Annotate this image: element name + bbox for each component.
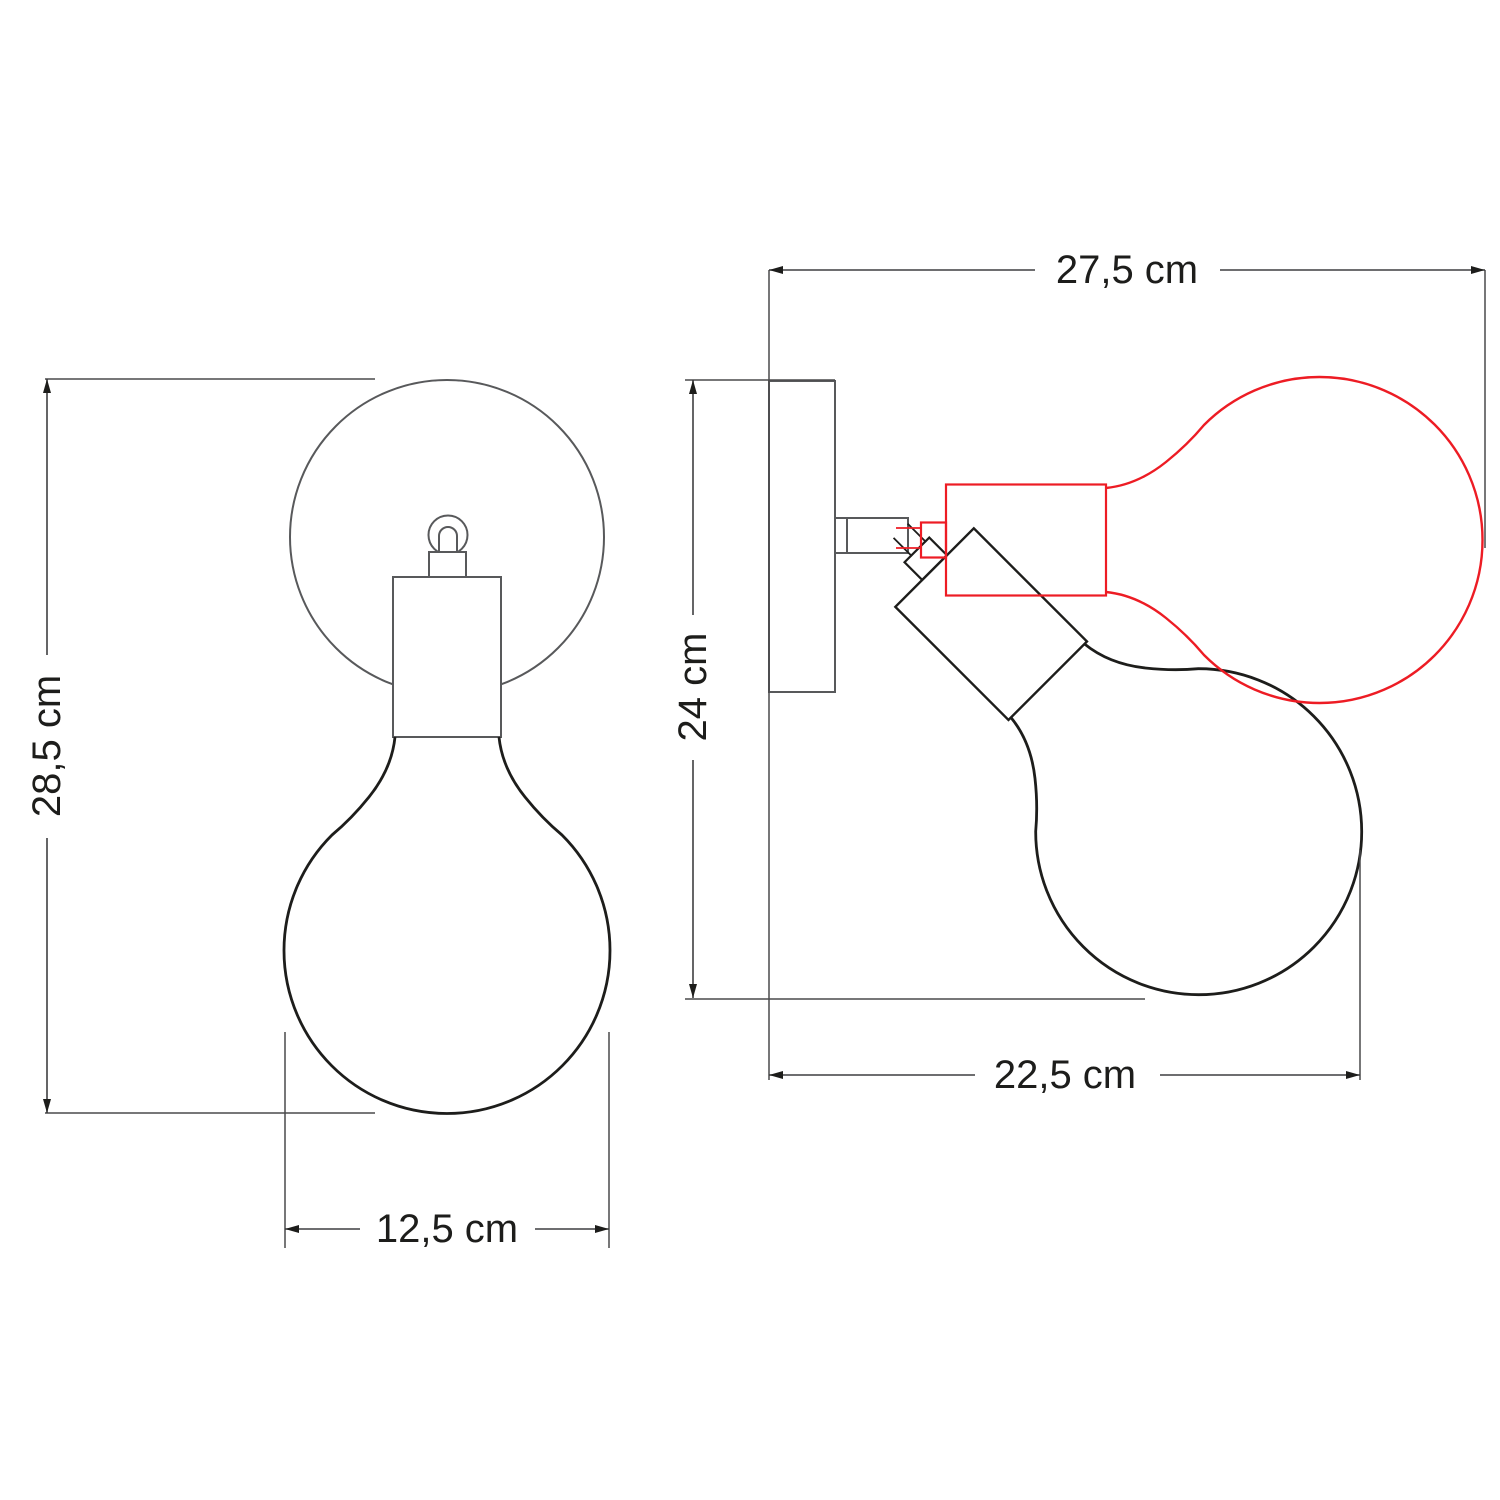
- wall-lamp-dimension-drawing: 28,5 cm 12,5 cm: [0, 0, 1500, 1500]
- globe-bulb-tilted: [932, 565, 1429, 1062]
- arrowhead-right-icon: [1346, 1071, 1360, 1079]
- dimension-side-height: 24 cm: [671, 380, 1145, 999]
- arrowhead-left-icon: [769, 266, 783, 274]
- arrowhead-down-icon: [689, 984, 697, 998]
- arrowhead-left-icon: [285, 1225, 299, 1233]
- dimension-drawing-canvas: 28,5 cm 12,5 cm: [0, 0, 1500, 1500]
- socket-nipple-front: [429, 552, 466, 577]
- side-view: 27,5 cm 24 cm 22,5 cm: [671, 248, 1485, 1097]
- dimension-label-height-side: 24 cm: [671, 633, 715, 742]
- dimension-label-height-front: 28,5 cm: [25, 675, 69, 817]
- hinge-knuckle-tilted: [905, 538, 947, 580]
- dimension-side-depth-tilted: 22,5 cm: [769, 850, 1360, 1097]
- arrowhead-right-icon: [595, 1225, 609, 1233]
- arrowhead-right-icon: [1471, 266, 1485, 274]
- arrowhead-up-icon: [43, 379, 51, 393]
- globe-bulb-front: [284, 737, 610, 1114]
- front-view: 28,5 cm 12,5 cm: [25, 379, 610, 1251]
- dimension-front-height: 28,5 cm: [25, 379, 375, 1113]
- wall-plate-side: [769, 381, 835, 692]
- dimension-front-width: 12,5 cm: [285, 1032, 609, 1251]
- globe-bulb-alt: [1106, 377, 1483, 703]
- arrowhead-left-icon: [769, 1071, 783, 1079]
- dimension-label-depth-max: 27,5 cm: [1056, 248, 1198, 292]
- arrowhead-down-icon: [43, 1099, 51, 1113]
- dimension-label-width-front: 12,5 cm: [376, 1207, 518, 1251]
- loop-ring-outer: [429, 516, 468, 555]
- lamp-socket-front: [393, 577, 501, 737]
- arrowhead-up-icon: [689, 380, 697, 394]
- dimension-label-depth-tilted: 22,5 cm: [994, 1053, 1136, 1097]
